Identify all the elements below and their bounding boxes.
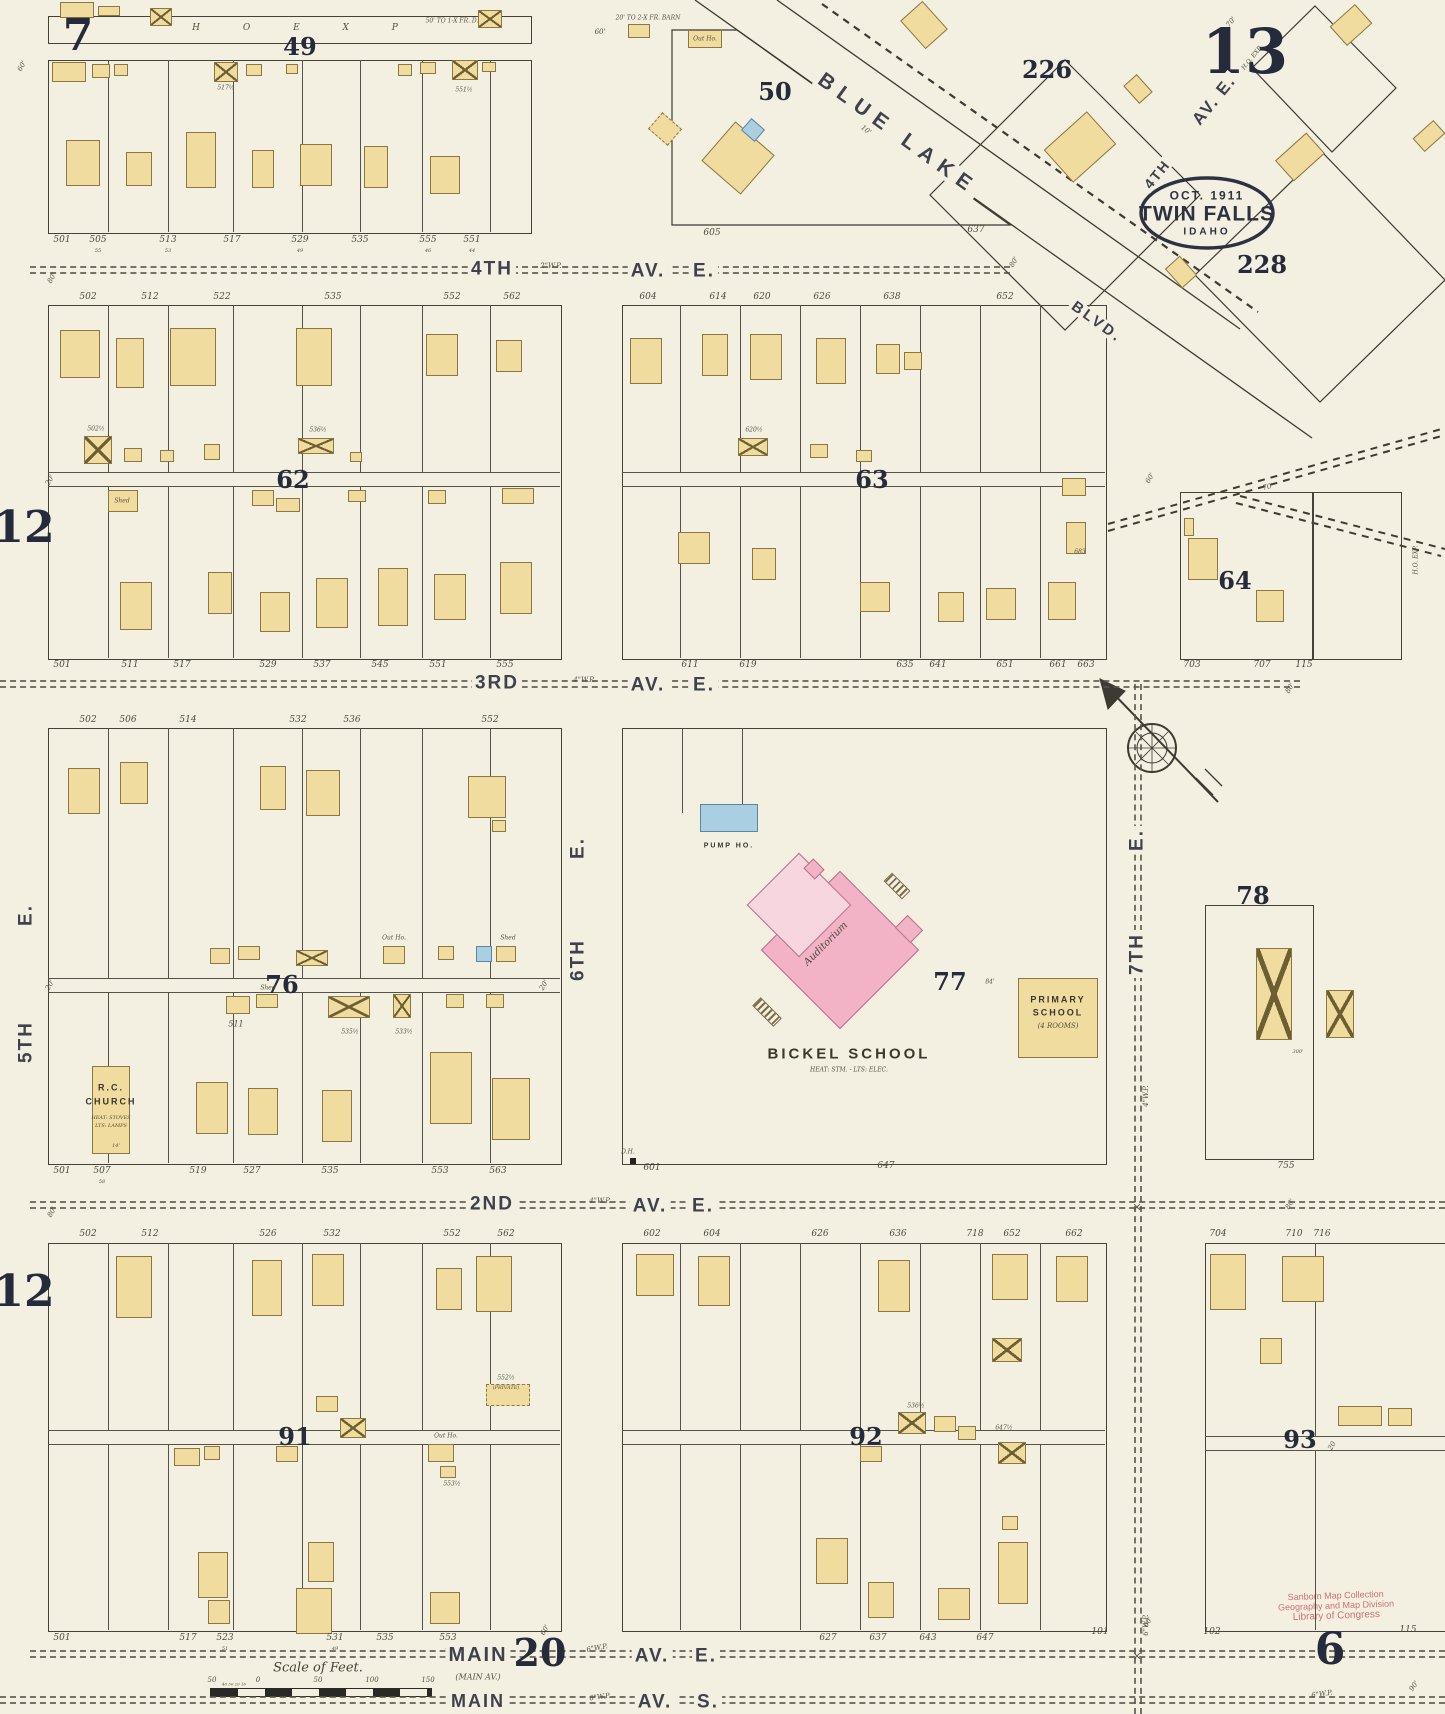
address-label: 626 [813, 292, 830, 302]
map-note: 4"W.P. [1142, 1085, 1150, 1106]
map-note: × [1132, 1201, 1141, 1214]
parcel-line [800, 1243, 801, 1430]
address-label: 511 [121, 660, 138, 670]
building [52, 62, 86, 82]
address-label: 637 [967, 225, 984, 235]
address-label: 614 [709, 292, 726, 302]
block-number: 50 [758, 80, 791, 104]
map-note: 552½ [497, 1375, 514, 1382]
building [398, 64, 412, 76]
address-label: 552 [443, 1229, 460, 1239]
alley-line [48, 978, 560, 979]
address-label: 637 [869, 1633, 886, 1643]
building [440, 1466, 456, 1478]
building [986, 588, 1016, 620]
building [116, 338, 144, 388]
building [276, 498, 300, 512]
block-number: 63 [855, 468, 888, 492]
building [68, 768, 100, 814]
parcel-line [108, 60, 109, 232]
parcel-line [800, 1444, 801, 1630]
parcel-line [490, 728, 491, 978]
building [120, 762, 148, 804]
building [92, 1066, 130, 1154]
map-note: 55 [95, 248, 101, 254]
building [492, 1078, 530, 1140]
building [126, 152, 152, 186]
parcel-line [360, 60, 361, 232]
parcel-line [168, 992, 169, 1163]
parcel-line [920, 305, 921, 472]
map-note: 551½ [455, 87, 472, 94]
sheet-ref-number: 20 [514, 1634, 567, 1672]
parcel-line [168, 1243, 169, 1430]
building [316, 1396, 338, 1412]
building [1048, 582, 1076, 620]
map-note: 40 30 20 10 [222, 1682, 246, 1687]
building [1388, 1408, 1412, 1426]
map-note: 53 [165, 248, 171, 254]
map-note: 60' [595, 28, 606, 36]
address-label: 502 [79, 1229, 96, 1239]
building [1282, 1256, 1324, 1302]
address-label: 627 [819, 1633, 836, 1643]
address-label: 532 [323, 1229, 340, 1239]
block-number: 49 [283, 35, 316, 59]
parcel-line [233, 728, 234, 978]
map-note: 502½ [87, 426, 104, 433]
scale-tick: 0 [256, 1676, 260, 1684]
map-note: 84' [985, 979, 994, 986]
map-note: × [1132, 1650, 1141, 1663]
parcel-line [980, 1243, 981, 1430]
building [476, 1256, 512, 1312]
parcel-line [800, 486, 801, 658]
building [860, 582, 890, 612]
sheet-ref-number: 6 [1315, 1628, 1346, 1672]
map-note: Out Ho. [434, 1433, 458, 1440]
map-note: 647½ [995, 1425, 1012, 1432]
scale-title: Scale of Feet. [273, 1661, 363, 1676]
parcel-line [168, 486, 169, 658]
address-label: 643 [919, 1633, 936, 1643]
parcel-line [490, 1444, 491, 1630]
building [238, 946, 260, 960]
block-number: 228 [1237, 253, 1287, 277]
parcel-line [1040, 1444, 1041, 1630]
block-number: 226 [1022, 58, 1072, 82]
building [446, 994, 464, 1008]
building [500, 562, 532, 614]
block-number: 62 [276, 468, 309, 492]
address-label: 620 [753, 292, 770, 302]
building [738, 438, 768, 456]
parcel-line [108, 1243, 109, 1430]
address-label: 531 [326, 1633, 343, 1643]
building [66, 140, 100, 186]
street-label: MAIN [448, 1692, 508, 1710]
map-note: 517½ [217, 85, 234, 92]
address-label: 551 [463, 235, 480, 245]
street-label: E. [569, 834, 588, 862]
parcel-line [233, 486, 234, 658]
parcel-line [740, 1444, 741, 1630]
building [428, 490, 446, 504]
address-label: 535 [351, 235, 368, 245]
block-number: 93 [1283, 1428, 1316, 1452]
map-line [1196, 778, 1213, 795]
building [998, 1442, 1026, 1464]
sheet-ref-number: 12 [0, 1270, 55, 1314]
parcel-line [422, 728, 423, 978]
block-number: 77 [933, 970, 966, 994]
map-note: D.H. [621, 1149, 635, 1156]
building [958, 1426, 976, 1440]
parcel-line [168, 305, 169, 472]
map-note: 536½ [309, 427, 326, 434]
address-label: 638 [883, 292, 900, 302]
building [750, 334, 782, 380]
parcel-line [422, 1243, 423, 1430]
title-stamp: OCT. 1911 TWIN FALLS IDAHO [1139, 189, 1275, 238]
building [248, 1088, 278, 1135]
scale-tick: 50 [314, 1676, 323, 1684]
building [246, 64, 262, 76]
alley-line [1205, 1436, 1445, 1437]
parcel-line [860, 1444, 861, 1630]
building [878, 1260, 910, 1312]
building [252, 1260, 282, 1316]
building [430, 156, 460, 194]
building [260, 592, 290, 632]
parcel-line [360, 728, 361, 978]
map-line [1108, 688, 1218, 802]
building [252, 490, 274, 506]
building [934, 1416, 956, 1432]
street-label: E. [17, 901, 36, 929]
map-note: 20' TO 2-X FR. BARN [616, 15, 681, 22]
parcel-line [233, 1444, 234, 1630]
parcel-line [920, 1444, 921, 1630]
building [186, 132, 216, 188]
map-note: 300' [1293, 1049, 1304, 1055]
address-label: 502 [79, 292, 96, 302]
address-label: 537 [313, 660, 330, 670]
parcel-line [680, 486, 681, 658]
building [296, 950, 328, 966]
building [816, 1538, 848, 1584]
building [214, 62, 238, 82]
parcel-line [490, 305, 491, 472]
parcel-line [742, 728, 743, 813]
block-number: 91 [278, 1425, 311, 1449]
parcel-line [1315, 1450, 1316, 1630]
map-note: 44 [469, 248, 475, 254]
parcel-line [860, 486, 861, 658]
block-number: 92 [849, 1425, 882, 1449]
map-note: (4 ROOMS) [1038, 1022, 1079, 1030]
building [286, 64, 298, 74]
building [876, 344, 900, 374]
stone-building [476, 946, 492, 962]
building [98, 6, 120, 16]
parcel-line [680, 1444, 681, 1630]
building [428, 1444, 454, 1462]
block-number: 64 [1218, 569, 1251, 593]
building [496, 340, 522, 372]
street-line [30, 1201, 1445, 1209]
street-label: 4TH [468, 260, 516, 279]
address-label: 755 [1277, 1161, 1294, 1171]
address-label: 527 [243, 1166, 260, 1176]
map-note: 50' TO 1-X FR. D. [426, 18, 479, 25]
building [393, 994, 411, 1018]
parcel-line [680, 305, 681, 472]
address-label: 102 [1203, 1627, 1220, 1637]
parcel-line [168, 60, 169, 232]
building [348, 490, 366, 502]
building-label: BICKEL SCHOOL [768, 1047, 931, 1062]
building [120, 582, 152, 630]
parcel-line [168, 1444, 169, 1630]
building [204, 444, 220, 460]
address-label: 536 [343, 715, 360, 725]
address-label: 626 [811, 1229, 828, 1239]
building [628, 24, 650, 38]
parcel-line [360, 486, 361, 658]
building [430, 1592, 460, 1624]
address-label: 647 [976, 1633, 993, 1643]
address-label: 604 [639, 292, 656, 302]
building [328, 996, 370, 1018]
address-label: 652 [996, 292, 1013, 302]
address-label: 545 [371, 660, 388, 670]
sheet-ref-number: 7 [63, 14, 94, 58]
address-label: 553 [431, 1166, 448, 1176]
parcel-line [422, 486, 423, 658]
address-label: 529 [259, 660, 276, 670]
address-label: 707 [1253, 660, 1270, 670]
address-label: 551 [429, 660, 446, 670]
parcel-line [422, 305, 423, 472]
parcel-line [302, 728, 303, 978]
building [60, 330, 100, 378]
address-label: 535 [376, 1633, 393, 1643]
building [486, 994, 504, 1008]
street-label: 5TH [17, 1018, 36, 1066]
building [938, 592, 964, 622]
building [1256, 590, 1284, 622]
map-note: Out Ho. [382, 935, 406, 942]
building [260, 766, 286, 810]
parcel-line [233, 1243, 234, 1430]
building [492, 820, 506, 832]
address-label: 517 [179, 1633, 196, 1643]
parcel-line [740, 1243, 741, 1430]
address-label: 502 [79, 715, 96, 725]
parcel-line [302, 1243, 303, 1430]
building [312, 1254, 344, 1306]
street-label: S. [694, 1693, 722, 1712]
street-line [0, 1696, 1445, 1704]
address-label: 604 [703, 1229, 720, 1239]
building [340, 1418, 366, 1438]
address-label: 513 [159, 235, 176, 245]
address-label: 506 [119, 715, 136, 725]
building [938, 1588, 970, 1620]
building [160, 450, 174, 462]
address-label: 641 [929, 660, 946, 670]
building [170, 328, 216, 386]
parcel-line [108, 1444, 109, 1630]
building [502, 488, 534, 504]
building [1184, 518, 1194, 536]
address-label: 115 [1295, 660, 1312, 670]
address-label: 605 [703, 228, 720, 238]
street-label: E. [690, 262, 718, 281]
building [702, 334, 728, 376]
building [378, 568, 408, 626]
building [116, 1256, 152, 1318]
map-note: 14' [112, 1143, 120, 1149]
building [296, 1588, 332, 1634]
building [898, 1412, 926, 1434]
building [1188, 538, 1218, 580]
address-label: 517 [223, 235, 240, 245]
address-label: 555 [496, 660, 513, 670]
building [1256, 948, 1292, 1040]
map-note: H.O. EXP. [1413, 546, 1420, 575]
parcel-line [360, 305, 361, 472]
map-note: 4"W.P. [589, 1197, 610, 1205]
address-label: 619 [739, 660, 756, 670]
map-note: Shed [500, 935, 515, 942]
building [198, 1552, 228, 1598]
building [1056, 1256, 1088, 1302]
parcel-line [800, 305, 801, 472]
building [226, 996, 250, 1014]
address-label: 523 [216, 1633, 233, 1643]
street-label: 7TH [1128, 930, 1147, 978]
map-note: Shed [114, 498, 129, 505]
map-note: 51 [222, 1646, 228, 1652]
address-label: 505 [89, 235, 106, 245]
parcel-line [422, 992, 423, 1163]
building [868, 1582, 894, 1618]
scale-tick: 100 [365, 1676, 378, 1684]
address-label: 553 [439, 1633, 456, 1643]
address-label: 555 [419, 235, 436, 245]
map-note: 535½ [341, 1029, 358, 1036]
map-note: 553½ [443, 1481, 460, 1488]
address-label: 529 [291, 235, 308, 245]
street-label: 3RD [472, 674, 522, 693]
building [204, 1446, 220, 1460]
building [1326, 990, 1354, 1038]
parcel-line [740, 486, 741, 658]
building [436, 1268, 462, 1310]
map-note: Shed [260, 985, 275, 992]
parcel-line [490, 992, 491, 1163]
building-label: CHURCH [86, 1098, 137, 1107]
address-label: 501 [53, 235, 70, 245]
building [452, 60, 478, 80]
building [816, 338, 846, 384]
address-label: 662 [1065, 1229, 1082, 1239]
building [174, 1448, 200, 1466]
address-label: 526 [259, 1229, 276, 1239]
building [468, 776, 506, 818]
address-label: 519 [189, 1166, 206, 1176]
building [1002, 1516, 1018, 1530]
building [992, 1338, 1022, 1362]
address-label: 115 [1399, 1625, 1416, 1635]
street-label: E. [689, 1197, 717, 1216]
address-label: 535 [321, 1166, 338, 1176]
map-line [1205, 769, 1222, 786]
sheet-ref-number: 12 [0, 506, 55, 550]
sheet-number: 13 [1202, 21, 1288, 83]
building [252, 150, 274, 188]
building [308, 1542, 334, 1582]
parcel-line [920, 486, 921, 658]
map-note: 49 [297, 248, 303, 254]
address-label: 552 [443, 292, 460, 302]
building [438, 946, 454, 960]
building [630, 338, 662, 384]
building-label: PRIMARY [1030, 996, 1085, 1005]
address-label: 535 [324, 292, 341, 302]
address-label: 507 [93, 1166, 110, 1176]
street-label: E. [692, 1647, 720, 1666]
address-label: 636 [889, 1229, 906, 1239]
block-64-east [1312, 492, 1402, 660]
building [1018, 978, 1098, 1058]
map-note: 46 [425, 248, 431, 254]
address-label: 501 [53, 1633, 70, 1643]
street-line [30, 266, 1010, 274]
building [114, 64, 128, 76]
address-label: 703 [1183, 660, 1200, 670]
parcel-line [302, 486, 303, 658]
parcel-line [422, 1444, 423, 1630]
parcel-line [682, 728, 683, 813]
building [84, 436, 112, 464]
parcel-line [860, 1243, 861, 1430]
stamp-city: TWIN FALLS [1139, 203, 1275, 227]
parcel-line [233, 305, 234, 472]
building [210, 948, 230, 964]
building [92, 64, 110, 78]
address-label: 652 [1003, 1229, 1020, 1239]
address-label: 661 [1049, 660, 1066, 670]
building [496, 946, 516, 962]
street-label: AV. [630, 1197, 671, 1216]
map-note: 49 [332, 1646, 338, 1652]
building [124, 448, 142, 462]
sanborn-map-sheet: 13 OCT. 1911 TWIN FALLS IDAHO Sanborn Ma… [0, 0, 1445, 1714]
building [810, 444, 828, 458]
map-note: HEAT: STM. - LTS: ELEC. [810, 1067, 888, 1074]
building [150, 8, 172, 26]
address-label: 501 [53, 1166, 70, 1176]
stamp-state: IDAHO [1139, 227, 1275, 238]
address-label: 710 [1285, 1229, 1302, 1239]
parcel-line [1040, 486, 1041, 658]
parcel-line [860, 305, 861, 472]
building [1062, 478, 1086, 496]
building-label: SCHOOL [1033, 1009, 1084, 1018]
